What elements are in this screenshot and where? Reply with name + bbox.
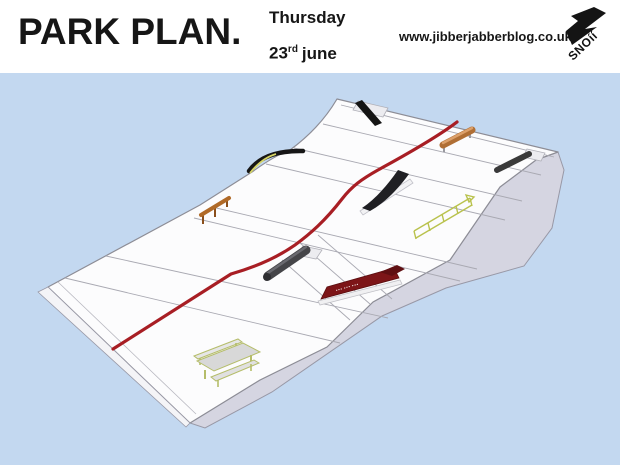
date-block: Thursday 23rdjune bbox=[269, 8, 346, 63]
date-weekday: Thursday bbox=[269, 8, 346, 27]
date-ordinal: rd bbox=[288, 44, 298, 55]
park-plan-drawing: ••• ••• ••• bbox=[0, 73, 620, 465]
date-month: june bbox=[302, 44, 337, 63]
header-bar: PARK PLAN. Thursday 23rdjune www.jibberj… bbox=[0, 0, 620, 73]
sno-logo: SNOíí bbox=[554, 4, 618, 72]
page-title: PARK PLAN. bbox=[18, 11, 241, 53]
date-day-line: 23rdjune bbox=[269, 40, 346, 63]
website-url: www.jibberjabberblog.co.uk bbox=[399, 29, 572, 44]
